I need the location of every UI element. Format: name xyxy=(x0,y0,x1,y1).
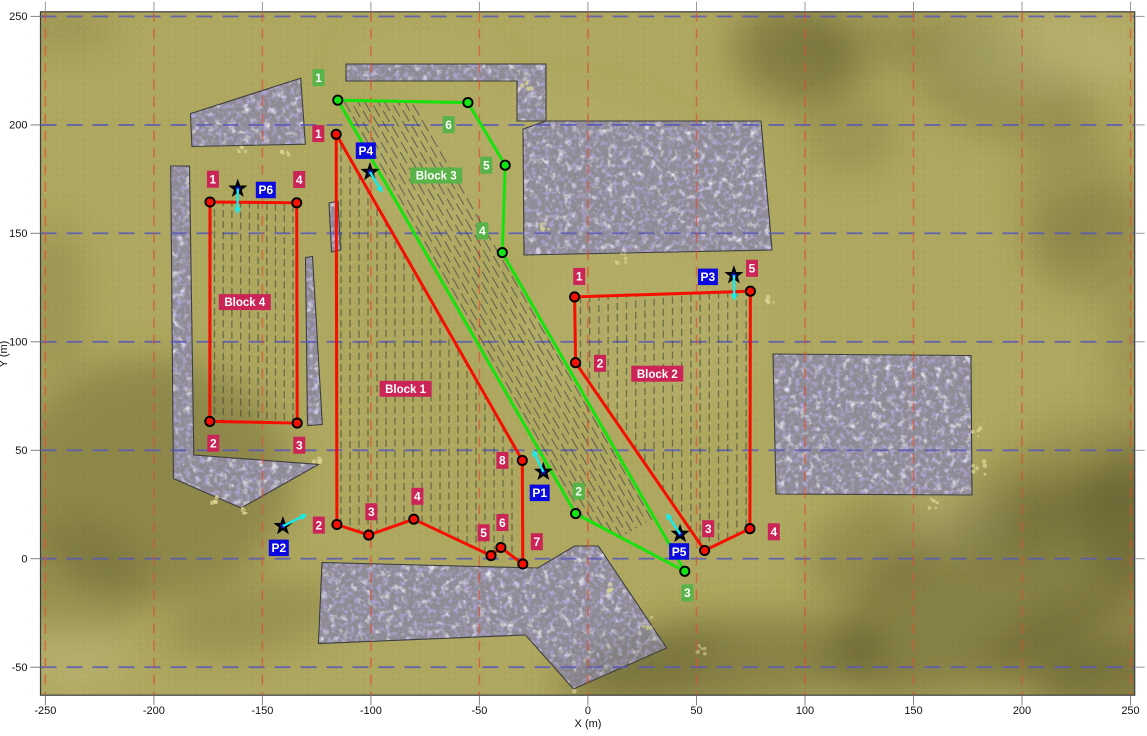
svg-text:6: 6 xyxy=(499,516,506,530)
svg-text:-200: -200 xyxy=(143,705,165,717)
svg-text:150: 150 xyxy=(904,705,922,717)
svg-text:250: 250 xyxy=(1121,705,1139,717)
svg-text:50: 50 xyxy=(690,705,702,717)
svg-text:P2: P2 xyxy=(271,541,286,555)
svg-text:0: 0 xyxy=(21,554,27,566)
svg-text:5: 5 xyxy=(480,526,487,540)
svg-text:1: 1 xyxy=(210,173,217,187)
svg-text:2: 2 xyxy=(315,518,322,532)
svg-text:1: 1 xyxy=(315,71,322,85)
svg-text:3: 3 xyxy=(684,586,691,600)
svg-text:100: 100 xyxy=(9,337,27,349)
svg-text:P5: P5 xyxy=(672,545,687,559)
svg-text:4: 4 xyxy=(296,173,303,187)
svg-text:200: 200 xyxy=(9,120,27,132)
svg-text:-100: -100 xyxy=(360,705,382,717)
svg-text:6: 6 xyxy=(445,118,452,132)
svg-text:200: 200 xyxy=(1013,705,1031,717)
svg-text:1: 1 xyxy=(315,127,322,141)
svg-text:Block 4: Block 4 xyxy=(224,297,266,309)
svg-text:-150: -150 xyxy=(251,705,273,717)
svg-text:4: 4 xyxy=(770,525,777,539)
svg-text:8: 8 xyxy=(499,454,506,468)
svg-text:-50: -50 xyxy=(12,662,28,674)
svg-text:3: 3 xyxy=(296,439,303,453)
svg-text:X (m): X (m) xyxy=(575,718,602,730)
svg-text:P3: P3 xyxy=(701,270,716,284)
svg-text:P1: P1 xyxy=(532,486,547,500)
svg-text:250: 250 xyxy=(9,11,27,23)
svg-text:7: 7 xyxy=(533,535,540,549)
svg-text:4: 4 xyxy=(479,224,486,238)
svg-text:Block 3: Block 3 xyxy=(416,171,457,183)
svg-text:3: 3 xyxy=(705,522,712,536)
svg-text:2: 2 xyxy=(597,357,604,371)
svg-text:5: 5 xyxy=(749,262,756,276)
svg-text:4: 4 xyxy=(414,490,421,504)
svg-text:-50: -50 xyxy=(471,705,487,717)
svg-text:3: 3 xyxy=(368,505,375,519)
svg-text:Y (m): Y (m) xyxy=(0,341,10,368)
svg-text:2: 2 xyxy=(210,437,217,451)
svg-text:2: 2 xyxy=(575,485,582,499)
svg-text:5: 5 xyxy=(483,159,490,173)
svg-text:-250: -250 xyxy=(34,705,56,717)
svg-text:0: 0 xyxy=(585,705,591,717)
svg-text:100: 100 xyxy=(796,705,814,717)
svg-text:Block 1: Block 1 xyxy=(385,384,427,396)
svg-text:50: 50 xyxy=(15,445,27,457)
svg-text:Block 2: Block 2 xyxy=(637,369,678,381)
svg-text:P6: P6 xyxy=(258,183,273,197)
svg-text:150: 150 xyxy=(9,228,27,240)
svg-text:1: 1 xyxy=(576,270,583,284)
svg-text:P4: P4 xyxy=(358,144,373,158)
